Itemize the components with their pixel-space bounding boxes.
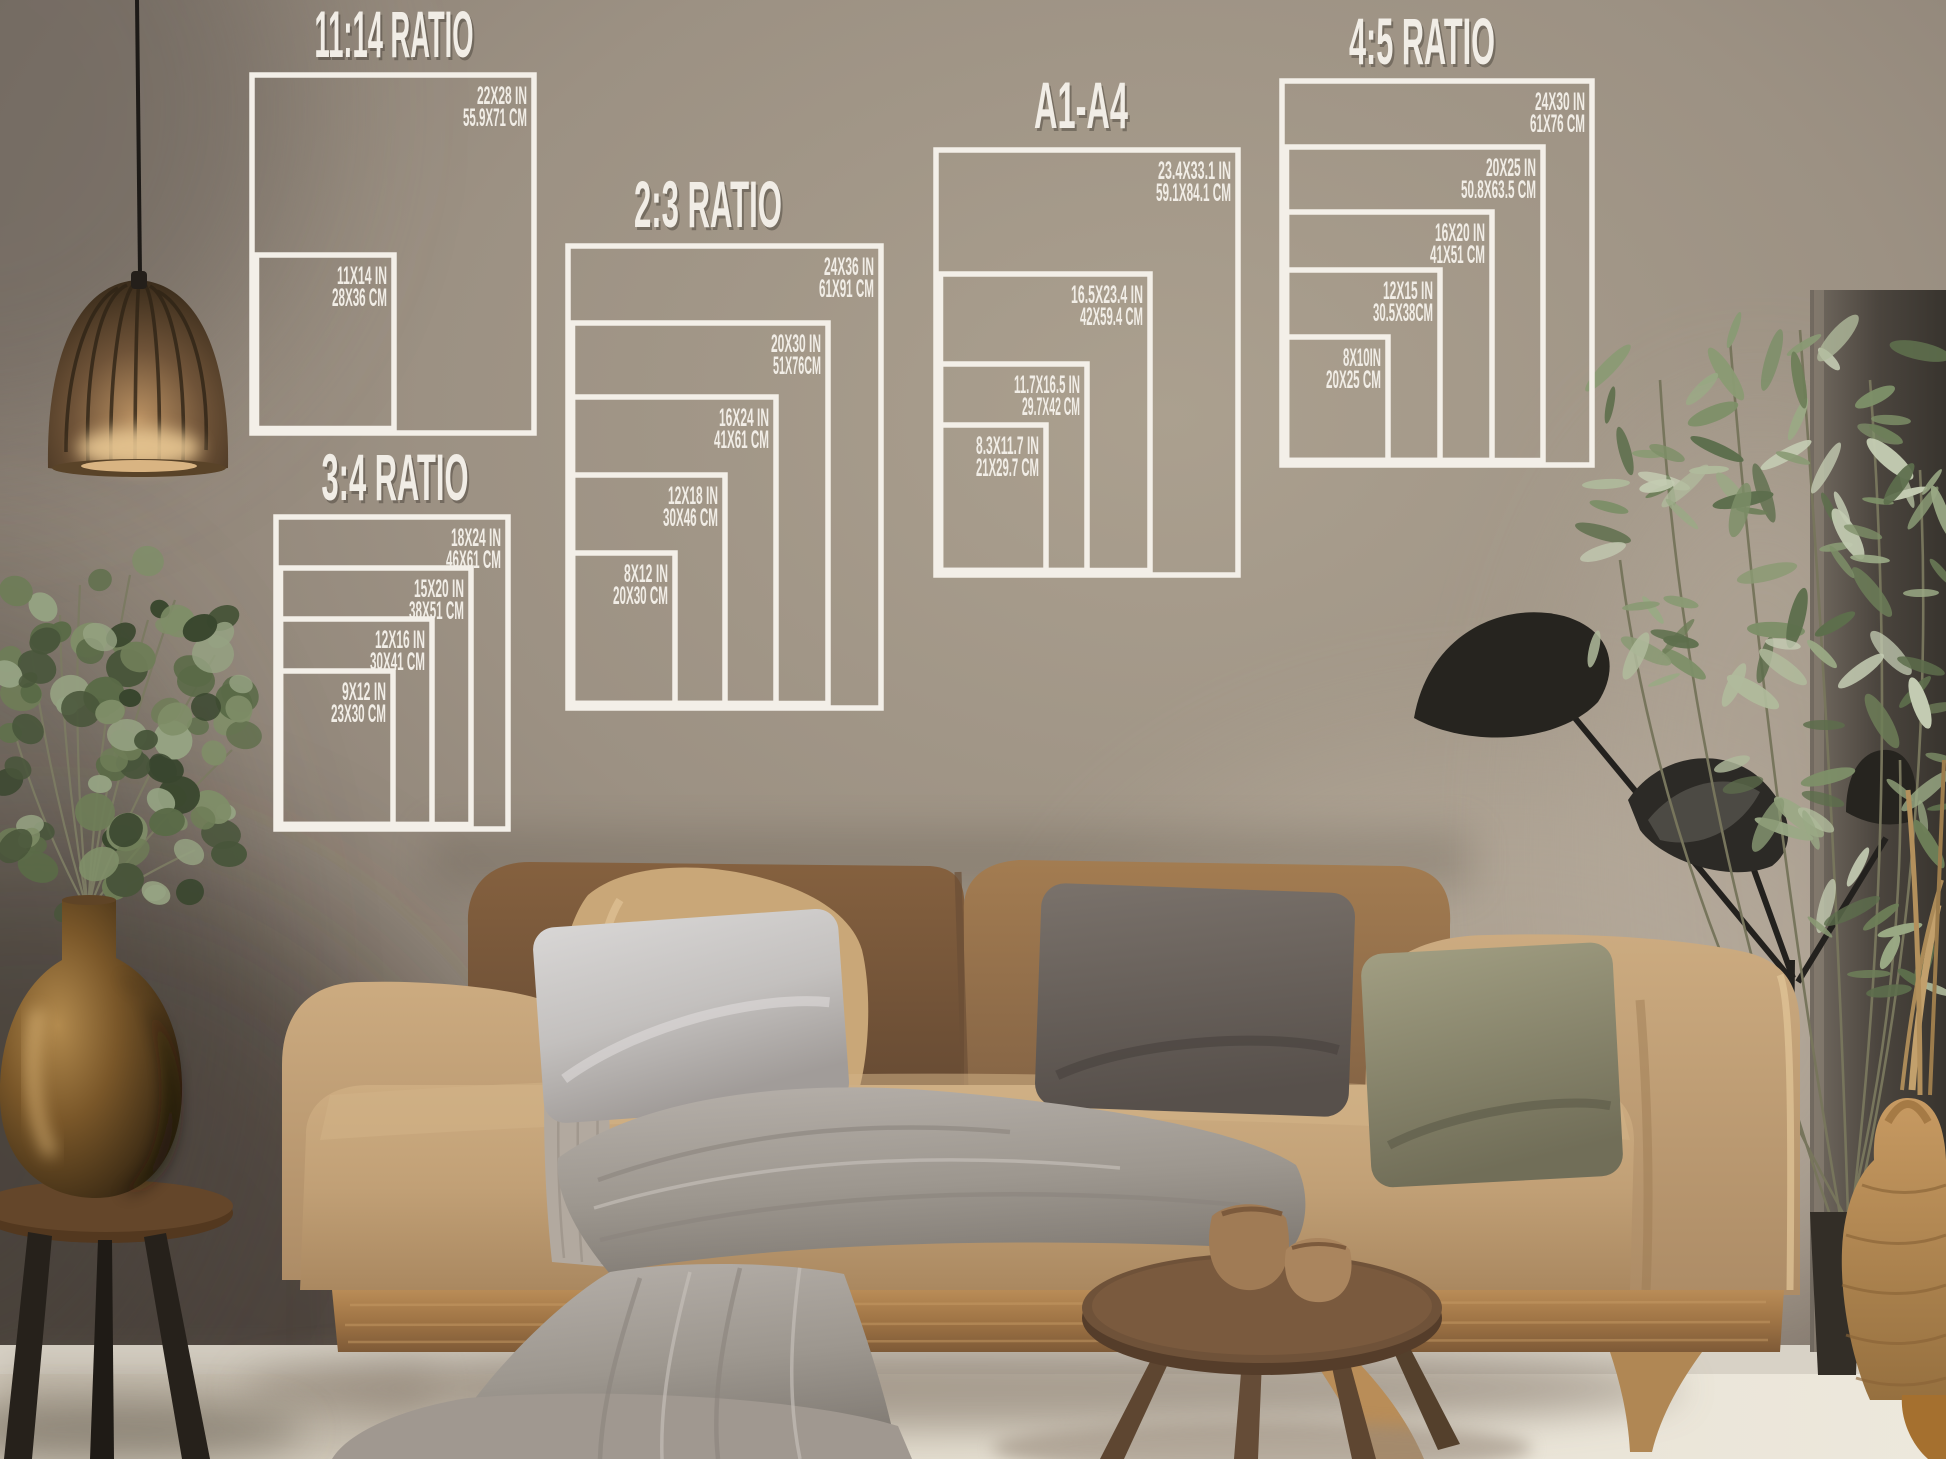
svg-text:30.5X38CM: 30.5X38CM xyxy=(1373,299,1433,327)
svg-text:55.9X71 CM: 55.9X71 CM xyxy=(463,104,527,132)
svg-text:30X46 CM: 30X46 CM xyxy=(663,504,718,532)
svg-text:4:5 RATIO: 4:5 RATIO xyxy=(1349,4,1495,78)
svg-text:41X61 CM: 41X61 CM xyxy=(714,426,769,454)
svg-text:28X36 CM: 28X36 CM xyxy=(332,284,387,312)
svg-text:21X29.7 CM: 21X29.7 CM xyxy=(976,454,1039,482)
svg-text:23X30 CM: 23X30 CM xyxy=(331,700,386,728)
svg-text:61X76 CM: 61X76 CM xyxy=(1530,110,1585,138)
svg-text:42X59.4 CM: 42X59.4 CM xyxy=(1080,303,1143,331)
svg-text:A1-A4: A1-A4 xyxy=(1034,68,1128,142)
svg-text:59.1X84.1 CM: 59.1X84.1 CM xyxy=(1156,179,1231,207)
svg-text:3:4 RATIO: 3:4 RATIO xyxy=(322,440,469,514)
svg-text:51X76CM: 51X76CM xyxy=(773,352,821,380)
svg-text:41X51 CM: 41X51 CM xyxy=(1430,241,1485,269)
svg-text:61X91 CM: 61X91 CM xyxy=(819,275,874,303)
svg-text:50.8X63.5 CM: 50.8X63.5 CM xyxy=(1461,176,1536,204)
svg-text:29.7X42 CM: 29.7X42 CM xyxy=(1022,393,1080,421)
svg-text:2:3 RATIO: 2:3 RATIO xyxy=(634,167,782,241)
svg-text:20X25 CM: 20X25 CM xyxy=(1326,366,1381,394)
svg-text:11:14 RATIO: 11:14 RATIO xyxy=(315,0,474,71)
svg-text:20X30 CM: 20X30 CM xyxy=(613,582,668,610)
